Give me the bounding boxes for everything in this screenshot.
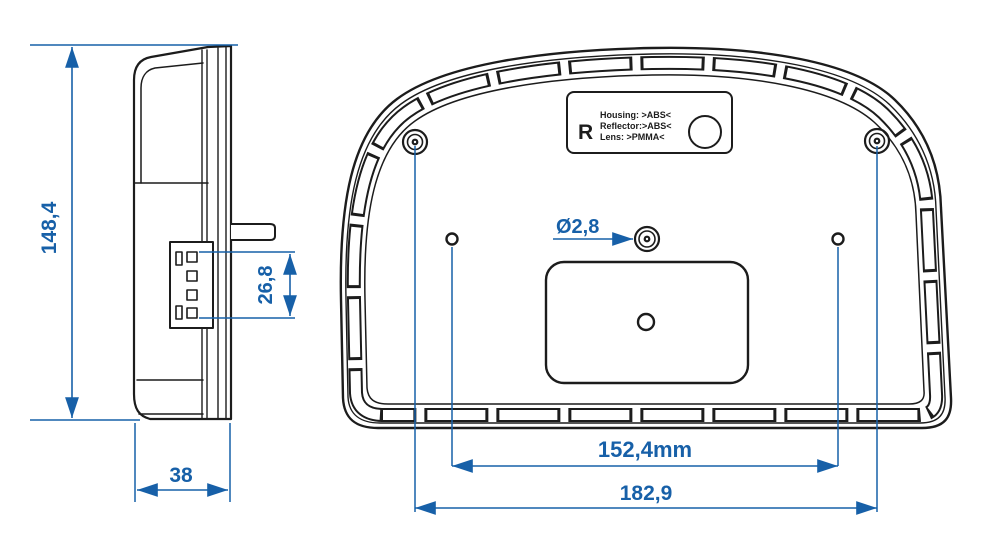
center-hole [635, 227, 659, 251]
drawing-canvas: R Housing: >ABS< Reflector:>ABS< Lens: >… [0, 0, 1000, 555]
marking-line-2: Reflector:>ABS< [600, 121, 672, 131]
connector-dimension-label: 26,8 [255, 266, 277, 305]
depth-dimension: 38 [135, 423, 230, 502]
hole-diameter-label: Ø2,8 [556, 216, 599, 238]
marking-line-3: Lens: >PMMA< [600, 132, 665, 142]
central-recess [546, 262, 748, 383]
inner-spacing-label: 152,4mm [598, 437, 692, 462]
marking-symbol: R [578, 121, 593, 144]
side-view-outline [134, 46, 231, 419]
marking-plate: R Housing: >ABS< Reflector:>ABS< Lens: >… [567, 92, 732, 153]
marking-line-1: Housing: >ABS< [600, 110, 671, 120]
mounting-tab [231, 224, 275, 240]
back-view: R Housing: >ABS< Reflector:>ABS< Lens: >… [341, 48, 951, 428]
inner-spacing-dimension: 152,4mm [452, 437, 838, 466]
outer-spacing-label: 182,9 [620, 482, 673, 505]
height-dimension-label: 148,4 [38, 201, 61, 254]
outer-spacing-dimension: 182,9 [415, 482, 877, 508]
technical-drawing: R Housing: >ABS< Reflector:>ABS< Lens: >… [0, 0, 1000, 555]
depth-dimension-label: 38 [169, 464, 193, 487]
side-view [134, 46, 275, 419]
